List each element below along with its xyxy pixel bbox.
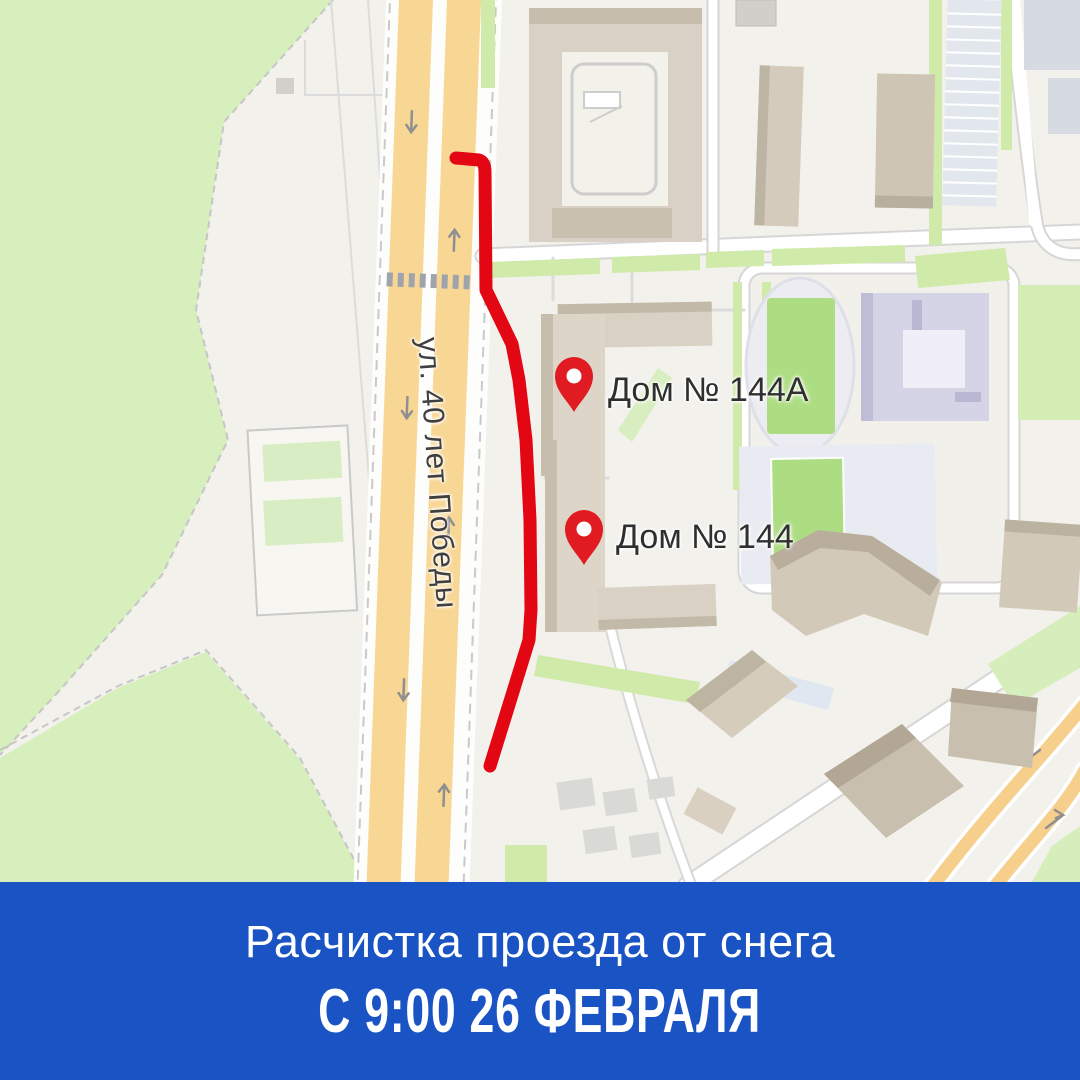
building-right-edge xyxy=(999,519,1080,612)
sports-courts xyxy=(248,425,358,615)
banner-title: Расчистка проезда от снега xyxy=(245,916,835,968)
school-building xyxy=(861,293,989,421)
building-east-1 xyxy=(754,65,804,226)
banner-datetime: С 9:00 26 ФЕВРАЛЯ xyxy=(319,976,762,1047)
announcement-banner: Расчистка проезда от снега С 9:00 26 ФЕВ… xyxy=(0,882,1080,1080)
house-label-144: Дом № 144 xyxy=(616,518,794,557)
map-pin-icon xyxy=(562,507,606,567)
house-label-144a: Дом № 144А xyxy=(608,371,808,410)
building-east-2 xyxy=(875,74,935,209)
building-complex xyxy=(529,8,702,242)
small-structure xyxy=(276,78,294,94)
parking-strip xyxy=(942,0,1001,207)
map-canvas xyxy=(0,0,1080,882)
snow-clearing-announcement-poster: ул. 40 лет Победы Дом № 144А Дом № 144 Р… xyxy=(0,0,1080,1080)
school-field-upper xyxy=(767,298,835,434)
building-small-top xyxy=(736,0,776,26)
map: ул. 40 лет Победы Дом № 144А Дом № 144 xyxy=(0,0,1080,882)
map-pin-icon xyxy=(552,354,596,414)
